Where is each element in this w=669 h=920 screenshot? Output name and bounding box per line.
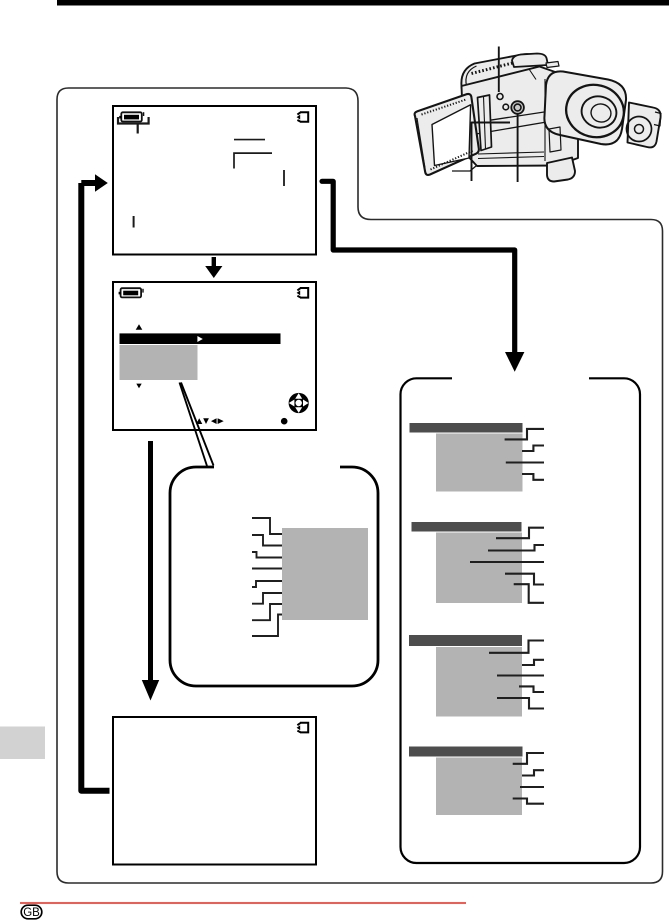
svg-text:GB: GB [23,907,40,919]
